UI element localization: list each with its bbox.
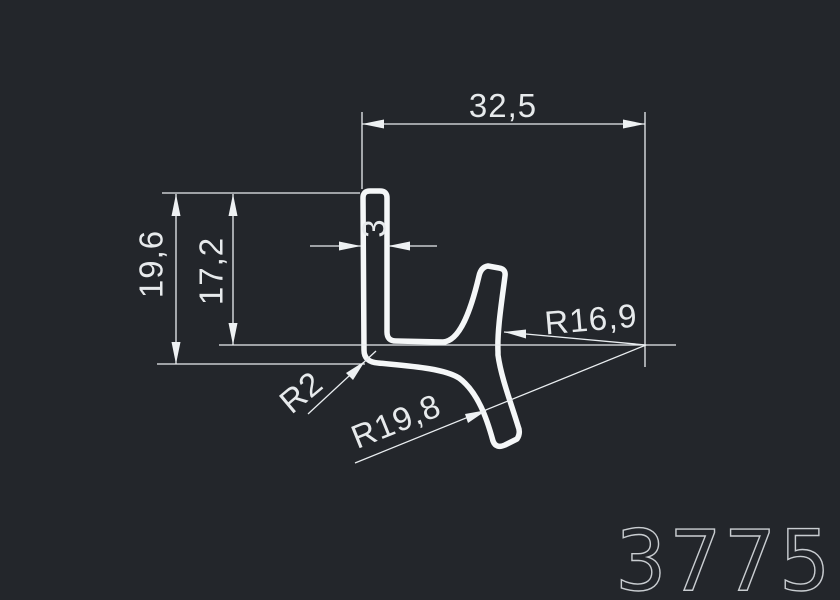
dim-label-thickness: 3: [356, 218, 393, 237]
drawing-background: [0, 0, 840, 600]
dim-label-top-width: 32,5: [469, 87, 537, 124]
part-number: 3775: [616, 512, 834, 600]
cad-viewport: 32,5 19,6 17,2 3 R16,9 R2 R19,8 3775: [0, 0, 840, 600]
cad-drawing-canvas: 32,5 19,6 17,2 3 R16,9 R2 R19,8 3775: [0, 0, 840, 600]
dim-label-height-inner: 17,2: [193, 237, 230, 305]
dim-label-height-outer: 19,6: [133, 230, 170, 298]
